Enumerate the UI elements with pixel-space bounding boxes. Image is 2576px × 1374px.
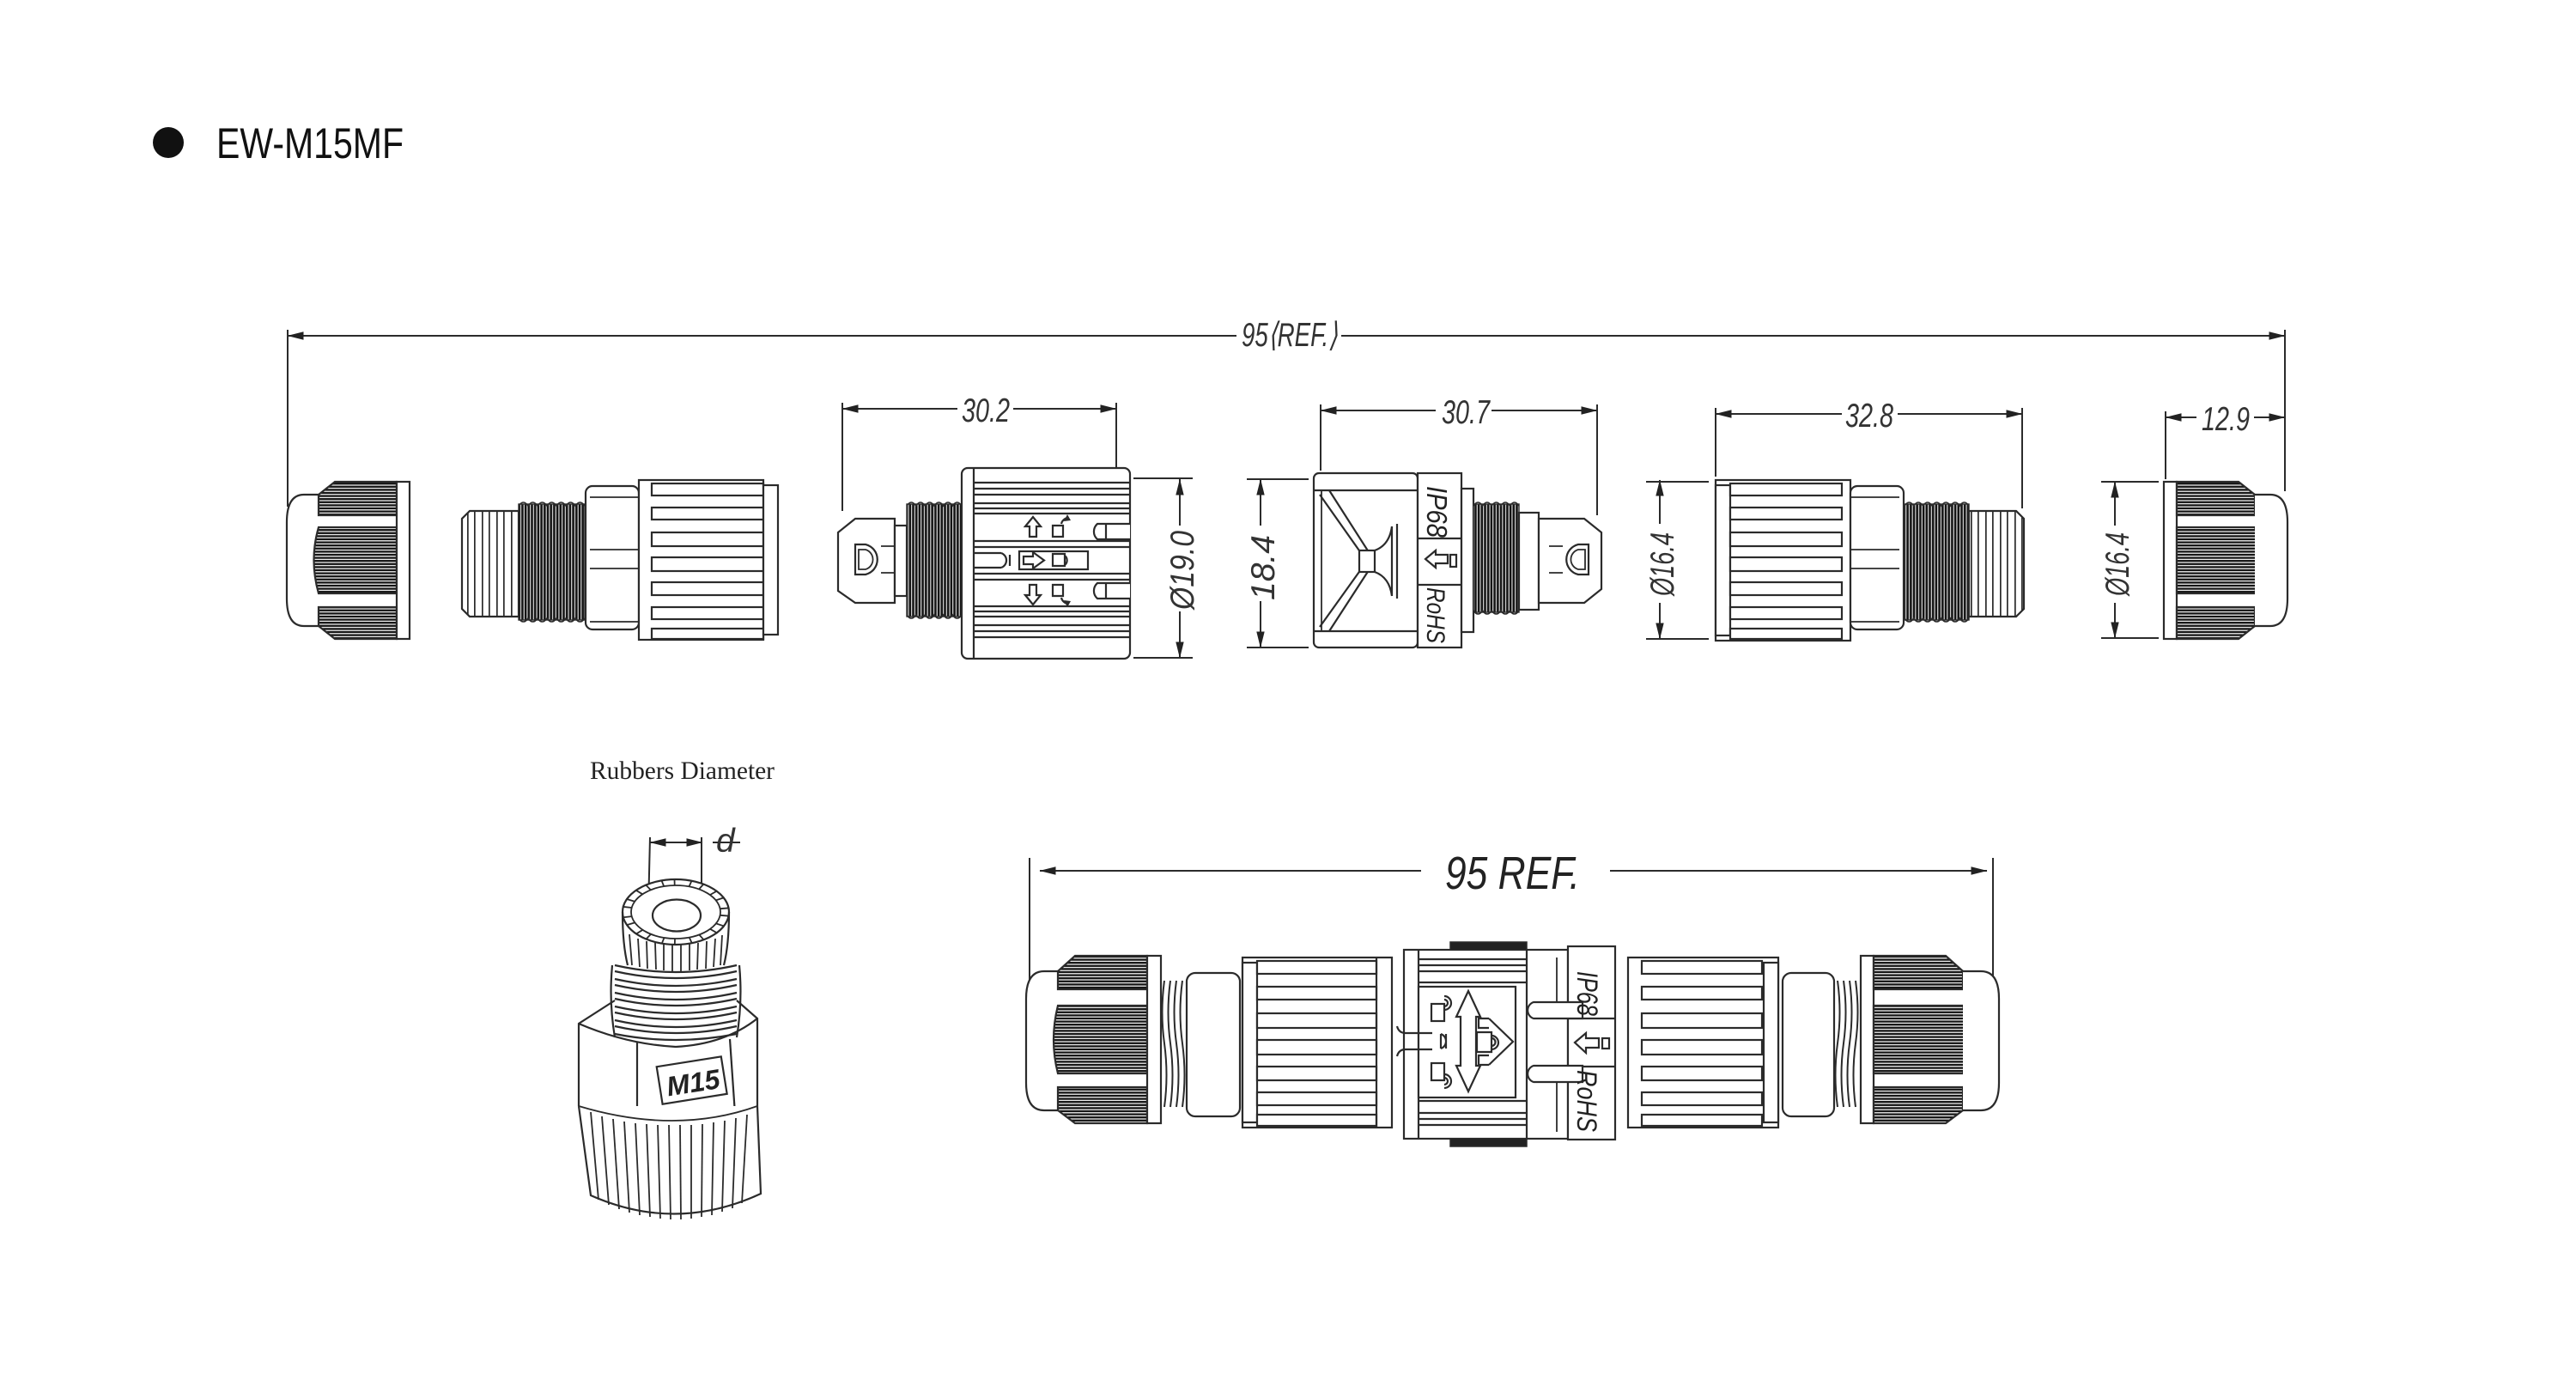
svg-text:12.9: 12.9 <box>2202 401 2250 438</box>
svg-text:d: d <box>716 823 736 860</box>
svg-text:IP68: IP68 <box>1421 486 1453 538</box>
svg-text:95 REF.: 95 REF. <box>1445 848 1580 899</box>
svg-text:95⟨REF.⟩: 95⟨REF.⟩ <box>1242 317 1338 354</box>
svg-text:30.2: 30.2 <box>962 392 1010 429</box>
svg-text:Ø19.0: Ø19.0 <box>1164 531 1201 611</box>
svg-text:RoHS: RoHS <box>1421 587 1449 643</box>
svg-text:Rubbers Diameter: Rubbers Diameter <box>590 757 775 785</box>
svg-text:Ø16.4: Ø16.4 <box>2099 532 2136 597</box>
svg-text:RoHS: RoHS <box>1571 1070 1602 1132</box>
svg-text:18.4: 18.4 <box>1245 535 1282 600</box>
svg-text:32.8: 32.8 <box>1845 398 1893 435</box>
svg-text:30.7: 30.7 <box>1442 394 1491 431</box>
svg-text:IP68: IP68 <box>1571 971 1603 1016</box>
svg-text:Ø16.4: Ø16.4 <box>1644 532 1681 597</box>
svg-text:EW-M15MF: EW-M15MF <box>216 119 404 167</box>
